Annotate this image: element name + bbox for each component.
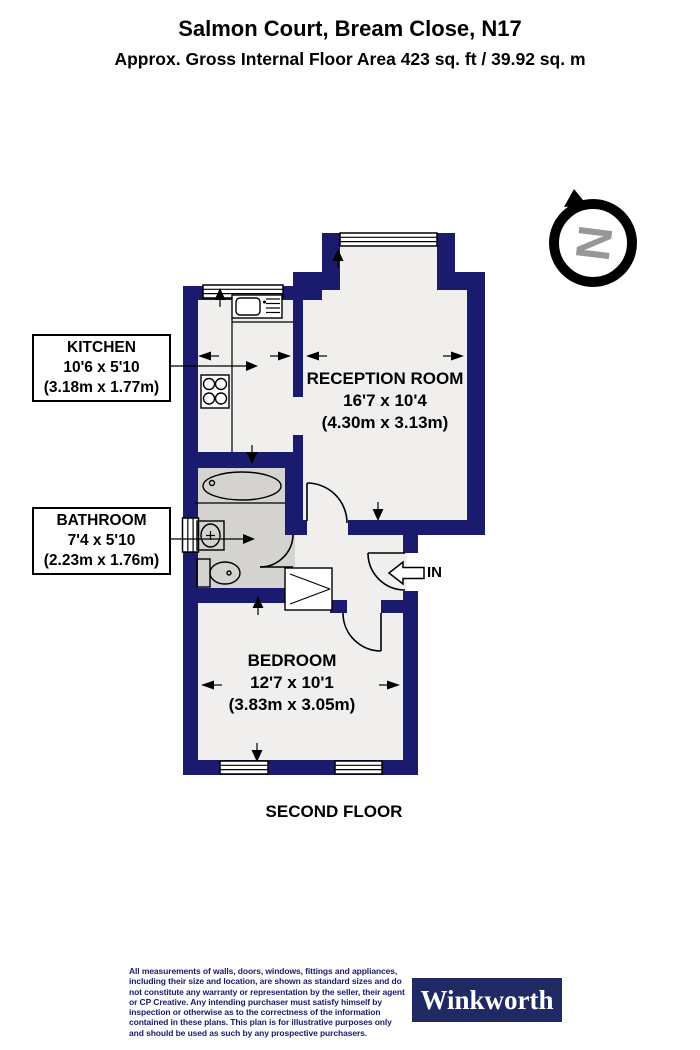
- kitchen-sink-icon: [232, 295, 282, 318]
- entrance-in-label: IN: [427, 564, 442, 581]
- kitchen-label-box: KITCHEN 10'6 x 5'10 (3.18m x 1.77m): [32, 334, 171, 402]
- bedroom-window-right-icon: [335, 761, 382, 774]
- winkworth-logo-text: Winkworth: [412, 978, 562, 1022]
- floor-name-label: SECOND FLOOR: [183, 802, 485, 822]
- kitchen-size-metric: (3.18m x 1.77m): [34, 378, 169, 398]
- bedroom-size-metric: (3.83m x 3.05m): [202, 694, 382, 716]
- bedroom-size-imperial: 12'7 x 10'1: [202, 672, 382, 694]
- bathroom-name: BATHROOM: [34, 511, 169, 531]
- reception-room-name: RECEPTION ROOM: [295, 368, 475, 390]
- bedroom-name: BEDROOM: [202, 650, 382, 672]
- bedroom-window-left-icon: [220, 761, 268, 774]
- reception-room-label: RECEPTION ROOM 16'7 x 10'4 (4.30m x 3.13…: [295, 368, 475, 434]
- reception-room-size-imperial: 16'7 x 10'4: [295, 390, 475, 412]
- kitchen-name: KITCHEN: [34, 338, 169, 358]
- bathroom-label-box: BATHROOM 7'4 x 5'10 (2.23m x 1.76m): [32, 507, 171, 575]
- reception-room-size-metric: (4.30m x 3.13m): [295, 412, 475, 434]
- bay-window-icon: [340, 233, 437, 246]
- bathroom-window-icon: [183, 518, 199, 552]
- hob-icon: [201, 375, 229, 408]
- bathroom-size-metric: (2.23m x 1.76m): [34, 551, 169, 571]
- north-arrow-icon: N: [554, 189, 632, 282]
- cupboard-icon: [285, 568, 332, 610]
- bedroom-label: BEDROOM 12'7 x 10'1 (3.83m x 3.05m): [202, 650, 382, 716]
- floorplan-page: Salmon Court, Bream Close, N17 Approx. G…: [0, 0, 700, 1050]
- floorplan-drawing: N: [0, 0, 700, 900]
- disclaimer-text: All measurements of walls, doors, window…: [129, 966, 408, 1038]
- winkworth-logo: Winkworth: [412, 978, 562, 1022]
- bathroom-size-imperial: 7'4 x 5'10: [34, 531, 169, 551]
- kitchen-size-imperial: 10'6 x 5'10: [34, 358, 169, 378]
- compass-north-letter: N: [565, 223, 622, 264]
